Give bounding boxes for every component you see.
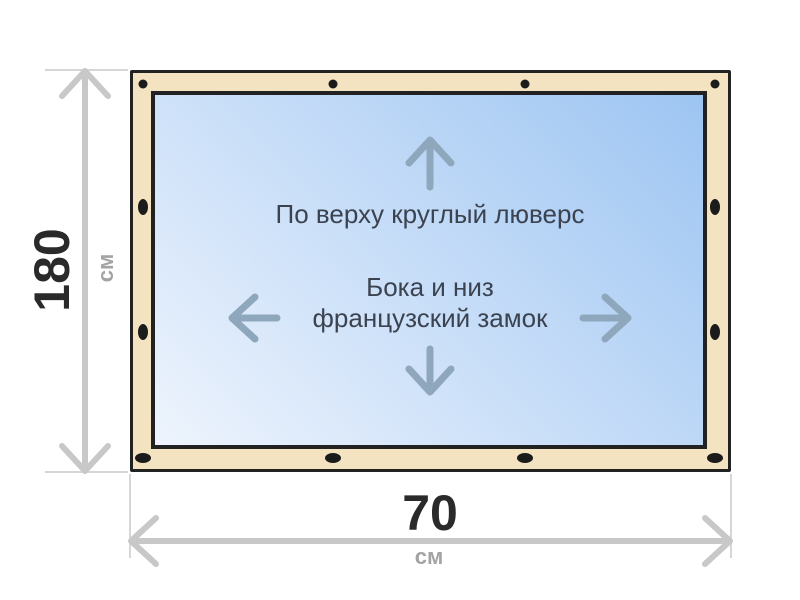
height-unit-label: см (93, 254, 119, 283)
arrow-up-icon (409, 140, 451, 187)
arrow-down-icon (409, 349, 451, 392)
arrow-left-icon (232, 297, 277, 339)
side-bottom-fastening-label: Бока и низ французский замок (313, 272, 548, 334)
top-fastening-label: По верху круглый люверс (276, 199, 585, 230)
width-value-label: 70 (402, 484, 458, 542)
arrow-right-icon (583, 297, 628, 339)
tarp-dimension-diagram: По верху круглый люверс Бока и низ франц… (0, 0, 800, 600)
side-bottom-fastening-line2: французский замок (313, 303, 548, 334)
height-value-label: 180 (23, 228, 81, 311)
side-bottom-fastening-line1: Бока и низ (313, 272, 548, 303)
width-unit-label: см (415, 544, 444, 570)
